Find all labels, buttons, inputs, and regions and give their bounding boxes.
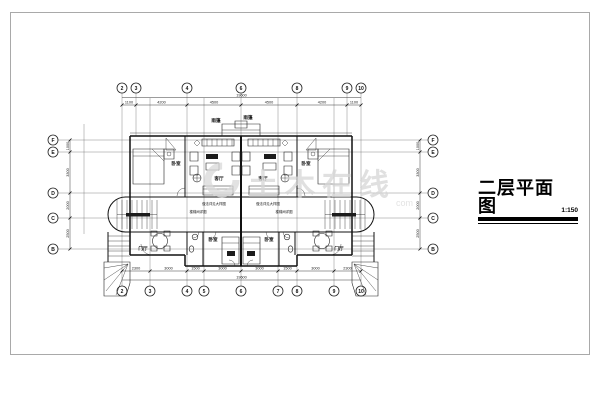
dim-right: 2500 xyxy=(416,229,420,237)
watermark: 土木在线 com xyxy=(208,166,413,208)
title-underline-thin xyxy=(478,223,578,224)
axis-bubble: 7 xyxy=(273,286,283,296)
label-bedroom: 卧室 xyxy=(301,160,311,167)
dim-left: 1000 xyxy=(66,142,70,150)
svg-text:D: D xyxy=(51,191,55,197)
stair-left xyxy=(108,200,157,262)
dim-left: 2500 xyxy=(66,229,70,237)
dim-bottom-total: 19600 xyxy=(236,276,247,280)
dim-top-total: 19600 xyxy=(236,93,247,97)
dim-top: 1100 xyxy=(350,101,358,105)
dim-top: 4500 xyxy=(210,101,218,105)
axis-bubble: 9 xyxy=(329,286,339,296)
label-bedroom: 卧室 xyxy=(171,160,181,167)
axis-bubbles-top: 2 3 4 6 8 9 10 xyxy=(117,83,366,93)
axis-bubble: E xyxy=(428,147,438,157)
svg-text:C: C xyxy=(51,216,55,222)
axis-bubble: C xyxy=(428,213,438,223)
axis-bubble: 10 xyxy=(356,83,366,93)
svg-text:5: 5 xyxy=(203,289,206,295)
axis-bubble: C xyxy=(48,213,58,223)
stair-right xyxy=(325,200,374,262)
svg-text:8: 8 xyxy=(296,289,299,295)
svg-text:4: 4 xyxy=(186,86,189,92)
drawing-title: 二层平面图 xyxy=(478,179,559,215)
floor-plan-canvas: 19600 1100 4200 4500 4500 4200 1100 2300… xyxy=(40,70,460,310)
svg-text:F: F xyxy=(431,138,434,144)
watermark-text: 土木在线 xyxy=(248,169,396,202)
axis-bubble: D xyxy=(48,188,58,198)
axis-bubble: 8 xyxy=(292,286,302,296)
axis-bubble: 2 xyxy=(117,286,127,296)
dim-right: 3300 xyxy=(416,168,420,176)
label-canopy: 雨篷 xyxy=(243,114,253,121)
dim-bottom: 2300 xyxy=(132,267,140,271)
svg-text:9: 9 xyxy=(346,86,349,92)
svg-text:3: 3 xyxy=(135,86,138,92)
dim-right: 1000 xyxy=(416,142,420,150)
svg-text:10: 10 xyxy=(358,86,364,92)
dining-left xyxy=(151,231,170,251)
axis-bubble: B xyxy=(48,244,58,254)
axis-bubble: D xyxy=(428,188,438,198)
axis-bubble: 4 xyxy=(182,83,192,93)
svg-text:C: C xyxy=(431,216,435,222)
svg-text:4: 4 xyxy=(186,289,189,295)
svg-text:D: D xyxy=(431,191,435,197)
bed-bottom-left xyxy=(222,237,239,264)
axis-bubble: B xyxy=(428,244,438,254)
axis-bubble: 2 xyxy=(117,83,127,93)
label-note: 楼梯间详图 xyxy=(190,209,208,214)
axis-bubble: 8 xyxy=(292,83,302,93)
axis-bubble: 9 xyxy=(342,83,352,93)
svg-text:6: 6 xyxy=(240,289,243,295)
dim-top: 1100 xyxy=(125,101,133,105)
axis-bubble: 6 xyxy=(236,286,246,296)
bed-bottom-right xyxy=(243,237,260,264)
dim-bottom: 3000 xyxy=(164,267,172,271)
svg-text:7: 7 xyxy=(277,289,280,295)
dim-bottom: 3000 xyxy=(255,267,263,271)
dim-right: 2000 xyxy=(416,201,420,209)
dining-right xyxy=(313,231,332,251)
dim-left: 3300 xyxy=(66,168,70,176)
dim-bottom: 3000 xyxy=(218,267,226,271)
label-bedroom: 卧室 xyxy=(208,236,218,243)
axis-bubble: 3 xyxy=(131,83,141,93)
dim-bottom: 1500 xyxy=(283,267,291,271)
dim-bottom: 1500 xyxy=(191,267,199,271)
svg-text:3: 3 xyxy=(149,289,152,295)
label-canopy: 雨篷 xyxy=(211,117,221,124)
axis-bubble: E xyxy=(48,147,58,157)
label-hall: 门厅 xyxy=(138,245,148,252)
watermark-suffix: com xyxy=(396,198,413,208)
dim-bottom: 3000 xyxy=(311,267,319,271)
axis-bubble: 6 xyxy=(236,83,246,93)
svg-text:10: 10 xyxy=(358,289,364,295)
svg-text:8: 8 xyxy=(296,86,299,92)
dim-top: 4200 xyxy=(157,101,165,105)
axis-bubble: 5 xyxy=(199,286,209,296)
label-hall: 门厅 xyxy=(334,245,344,252)
dim-top: 4200 xyxy=(318,101,326,105)
svg-text:B: B xyxy=(51,247,55,253)
axis-bubble: 3 xyxy=(145,286,155,296)
dim-bottom: 2300 xyxy=(343,267,351,271)
axis-bubbles-right: F E D C B xyxy=(428,135,438,254)
svg-text:2: 2 xyxy=(121,86,124,92)
bed-top-left xyxy=(133,138,176,184)
axis-bubble: F xyxy=(428,135,438,145)
axis-bubbles-bottom: 2 3 4 5 6 7 8 9 10 xyxy=(117,286,366,296)
svg-text:B: B xyxy=(431,247,435,253)
drawing-sheet: 19600 1100 4200 4500 4500 4200 1100 2300… xyxy=(0,0,600,400)
svg-text:2: 2 xyxy=(121,289,124,295)
svg-text:F: F xyxy=(51,138,54,144)
svg-text:9: 9 xyxy=(333,289,336,295)
axis-bubble: 4 xyxy=(182,286,192,296)
label-living: 客厅 xyxy=(213,175,224,182)
label-bedroom: 卧室 xyxy=(264,236,274,243)
drawing-title-block: 二层平面图 1:150 xyxy=(478,179,578,224)
drawing-scale: 1:150 xyxy=(561,207,578,214)
dim-left: 2000 xyxy=(66,201,70,209)
title-underline-thick xyxy=(478,217,578,221)
dim-top: 4500 xyxy=(265,101,273,105)
label-note: 做法详见大样图 xyxy=(202,201,226,206)
axis-bubbles-left: F E D C B xyxy=(48,135,58,254)
label-note: 楼梯间详图 xyxy=(276,209,294,214)
axis-bubble: F xyxy=(48,135,58,145)
svg-text:6: 6 xyxy=(240,86,243,92)
